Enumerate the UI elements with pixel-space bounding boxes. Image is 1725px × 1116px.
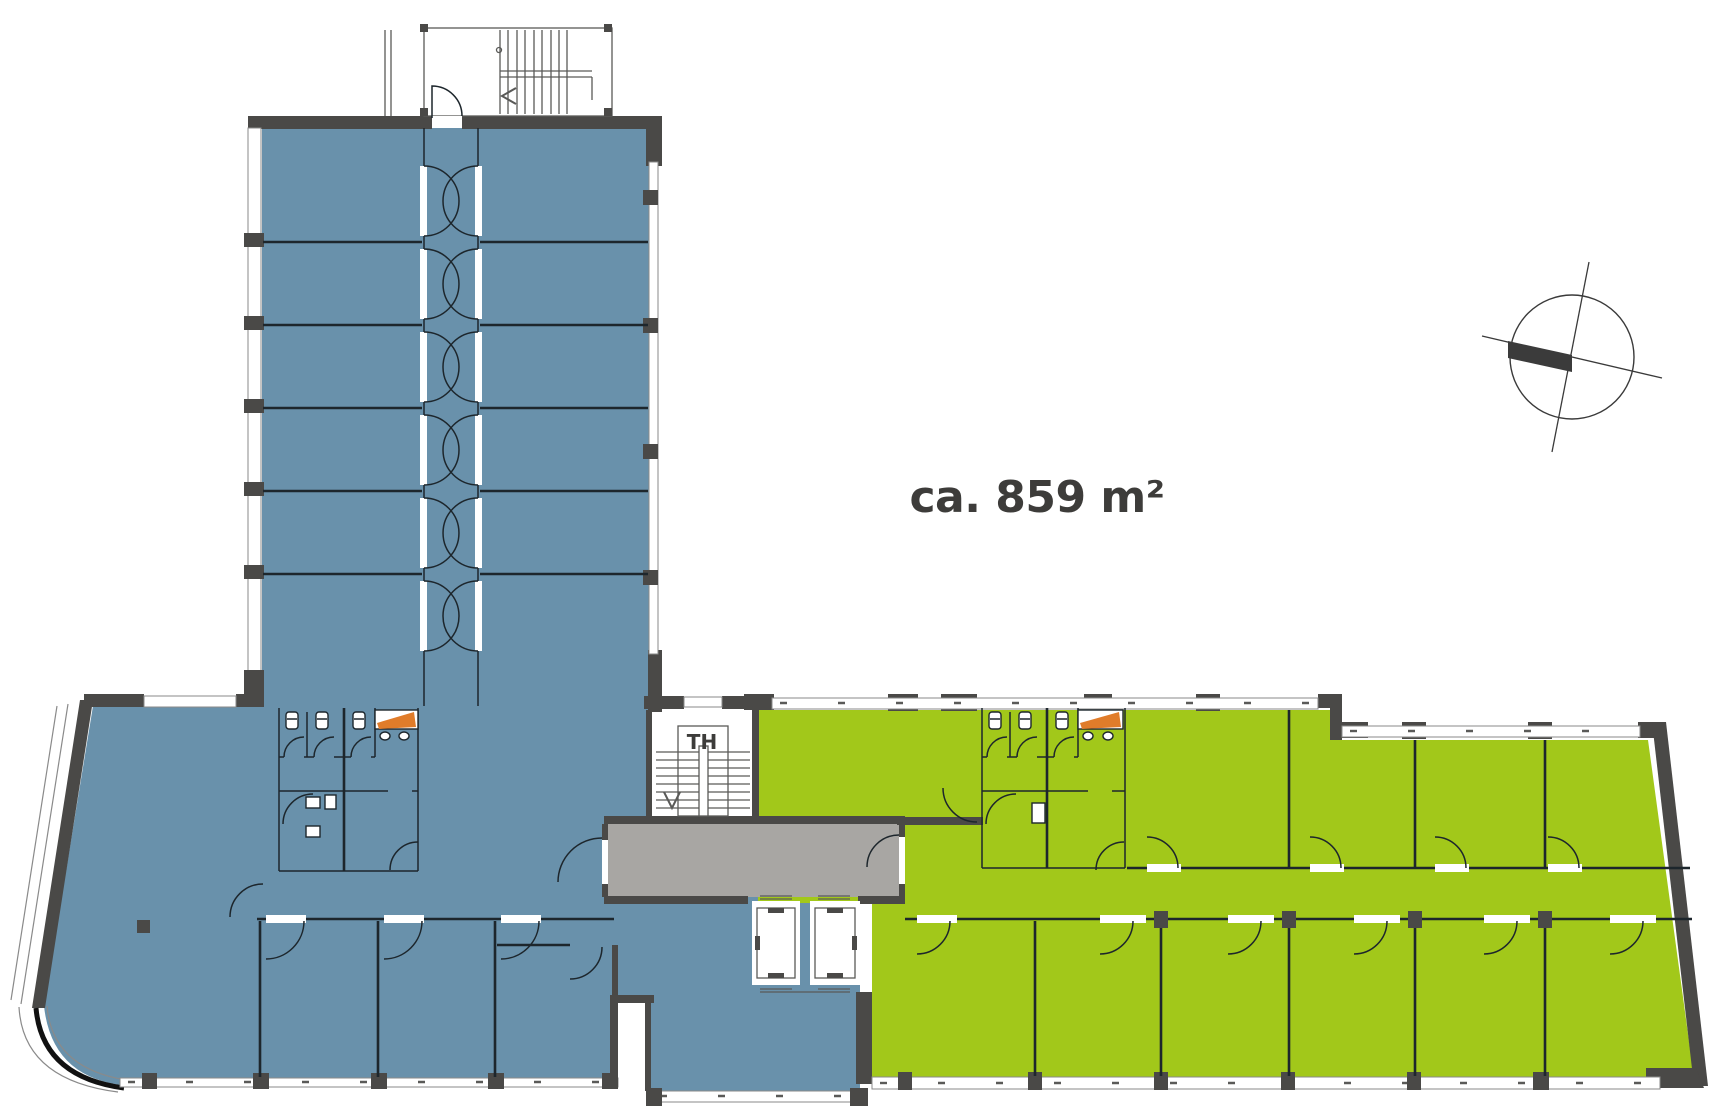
stairs-icon — [385, 30, 592, 116]
floor-plan-page: ca. 859 m² TH — [0, 0, 1725, 1116]
sink-icon — [1032, 803, 1045, 823]
sink-icon — [399, 732, 409, 740]
area-label: ca. 859 m² — [909, 472, 1164, 523]
sink-icon — [1083, 732, 1093, 740]
sink-icon — [380, 732, 390, 740]
column — [137, 920, 150, 933]
north-arrow-icon — [1482, 262, 1662, 452]
toilet-icons — [989, 712, 1068, 729]
floor-plan: ca. 859 m² TH — [0, 0, 1725, 1116]
roof-stair — [385, 24, 612, 128]
left-unit-zone — [44, 128, 860, 1092]
sink-icon — [1103, 732, 1113, 740]
corridor-zone — [608, 823, 905, 897]
toilet-icons — [286, 712, 365, 729]
stairwell-label: TH — [687, 730, 717, 754]
